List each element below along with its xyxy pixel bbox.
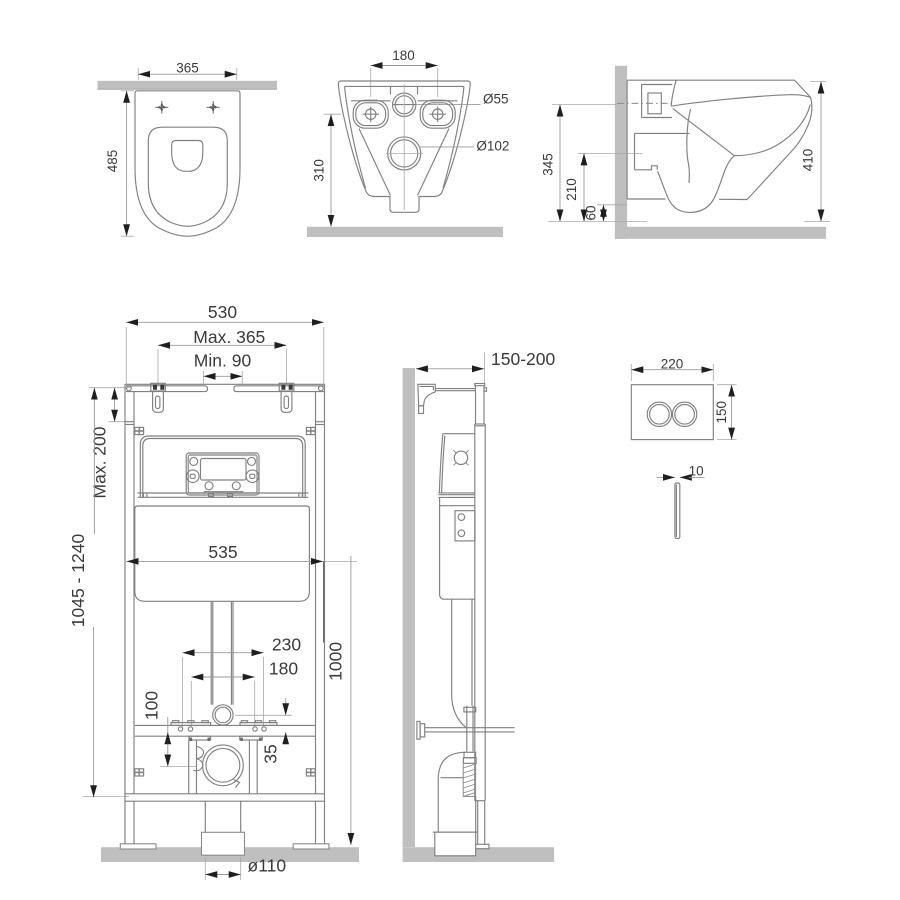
svg-text:1045 - 1240: 1045 - 1240 — [68, 534, 88, 628]
svg-text:35: 35 — [260, 744, 280, 763]
svg-text:485: 485 — [105, 150, 120, 173]
svg-text:60: 60 — [584, 205, 599, 220]
svg-text:150: 150 — [714, 401, 729, 424]
svg-text:365: 365 — [176, 60, 199, 75]
svg-text:1000: 1000 — [326, 642, 346, 681]
svg-text:180: 180 — [392, 48, 415, 63]
svg-text:Ø102: Ø102 — [476, 139, 509, 154]
svg-text:210: 210 — [564, 178, 579, 201]
svg-text:345: 345 — [541, 153, 556, 176]
svg-text:ø110: ø110 — [248, 856, 287, 876]
svg-text:530: 530 — [208, 302, 237, 322]
svg-text:180: 180 — [269, 659, 298, 679]
svg-text:Max. 365: Max. 365 — [193, 327, 265, 347]
svg-text:535: 535 — [208, 542, 237, 562]
svg-text:Max. 200: Max. 200 — [90, 426, 110, 498]
svg-text:Min. 90: Min. 90 — [194, 351, 252, 371]
svg-text:410: 410 — [801, 149, 816, 172]
svg-text:Ø55: Ø55 — [483, 91, 509, 106]
svg-text:230: 230 — [272, 635, 301, 655]
svg-text:310: 310 — [312, 159, 327, 182]
svg-text:100: 100 — [142, 691, 162, 720]
svg-text:150-200: 150-200 — [491, 349, 555, 369]
svg-text:10: 10 — [689, 464, 704, 479]
svg-text:220: 220 — [661, 356, 684, 371]
